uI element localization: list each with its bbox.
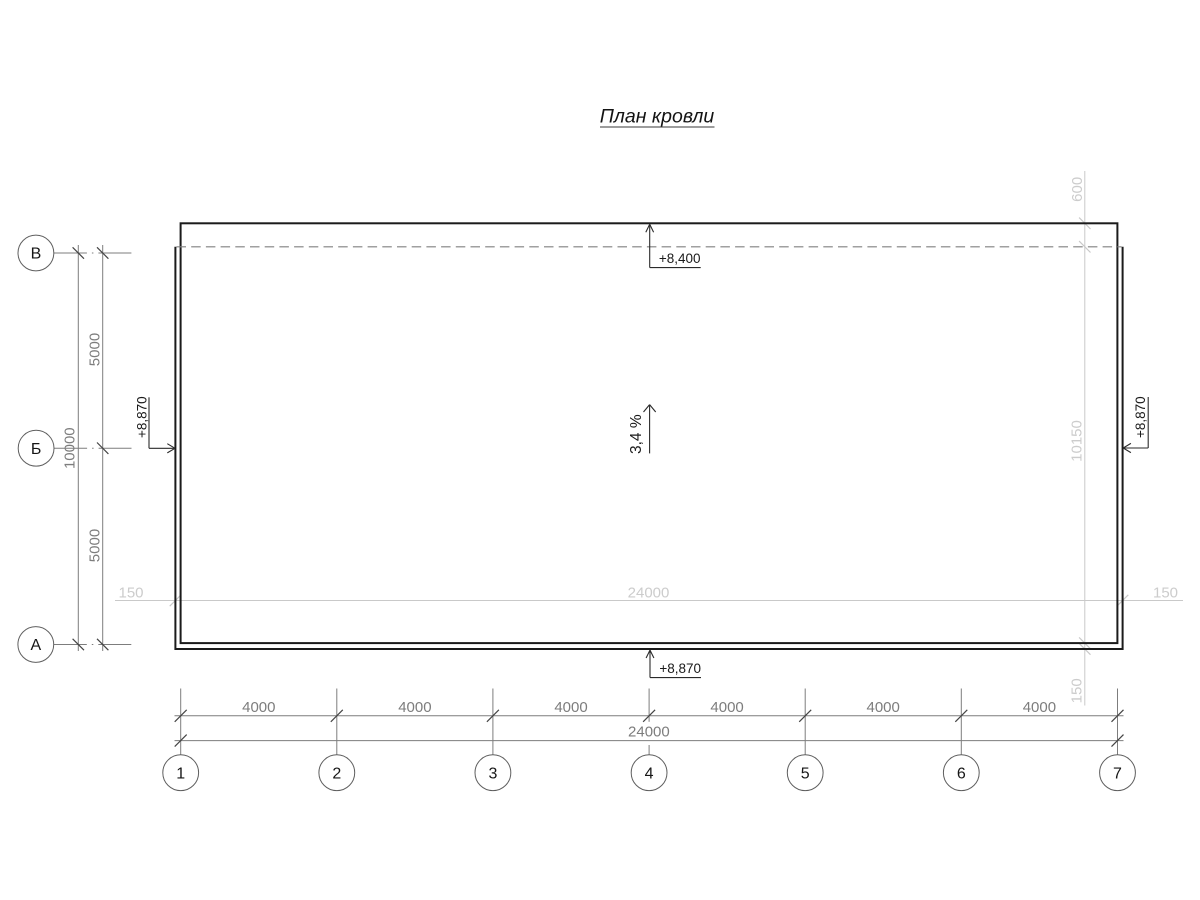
- svg-text:24000: 24000: [628, 724, 670, 741]
- svg-text:3: 3: [488, 765, 497, 782]
- svg-text:4000: 4000: [242, 699, 275, 716]
- svg-text:5000: 5000: [86, 333, 103, 366]
- svg-text:Б: Б: [31, 441, 42, 458]
- svg-text:4: 4: [645, 765, 654, 782]
- svg-text:3,4 %: 3,4 %: [628, 414, 645, 454]
- svg-text:4000: 4000: [710, 699, 743, 716]
- svg-text:6: 6: [957, 765, 966, 782]
- svg-text:150: 150: [1153, 584, 1178, 601]
- svg-text:10150: 10150: [1069, 420, 1086, 462]
- svg-text:10000: 10000: [62, 427, 79, 469]
- svg-text:+8,870: +8,870: [135, 396, 150, 438]
- svg-text:150: 150: [1069, 678, 1086, 703]
- svg-text:7: 7: [1113, 765, 1122, 782]
- svg-text:4000: 4000: [1023, 699, 1056, 716]
- svg-text:+8,400: +8,400: [659, 251, 701, 266]
- svg-text:4000: 4000: [398, 699, 431, 716]
- svg-text:1: 1: [176, 765, 185, 782]
- svg-text:24000: 24000: [628, 584, 670, 601]
- svg-text:+8,870: +8,870: [659, 661, 701, 676]
- svg-text:600: 600: [1069, 177, 1086, 202]
- svg-text:4000: 4000: [554, 699, 587, 716]
- svg-text:5: 5: [801, 765, 810, 782]
- svg-text:В: В: [31, 246, 42, 263]
- svg-text:4000: 4000: [867, 699, 900, 716]
- svg-text:План кровли: План кровли: [600, 106, 715, 128]
- svg-text:150: 150: [118, 584, 143, 601]
- svg-text:2: 2: [332, 765, 341, 782]
- svg-text:+8,870: +8,870: [1133, 396, 1148, 438]
- svg-text:5000: 5000: [86, 529, 103, 562]
- svg-text:А: А: [30, 637, 41, 654]
